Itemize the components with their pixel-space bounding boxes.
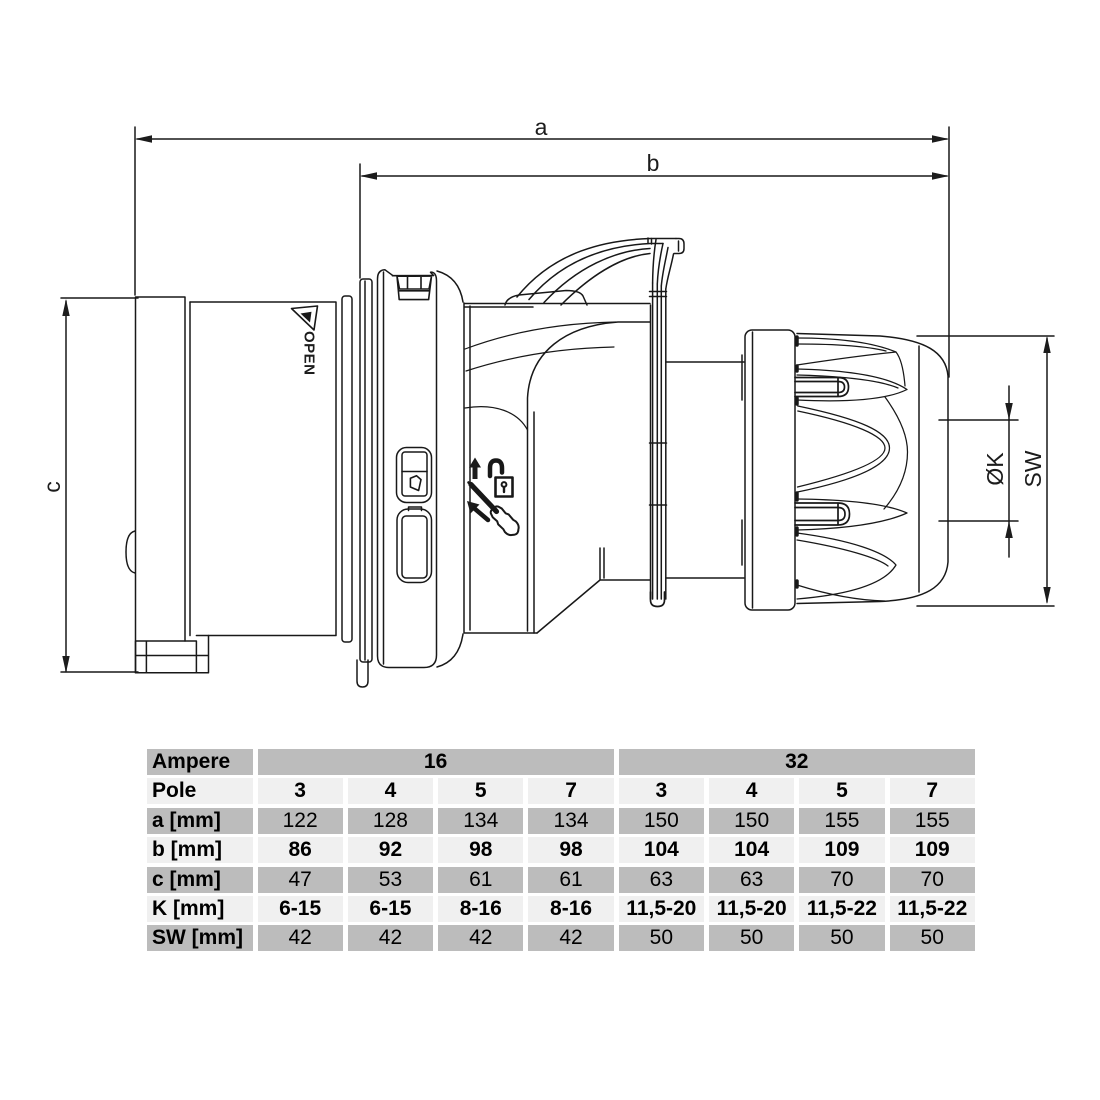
svg-text:b: b [647,150,660,176]
svg-text:c: c [39,481,65,493]
svg-text:a: a [535,114,548,140]
svg-text:SW: SW [1020,450,1046,487]
svg-text:ØK: ØK [982,452,1008,486]
svg-text:OPEN: OPEN [301,331,318,376]
